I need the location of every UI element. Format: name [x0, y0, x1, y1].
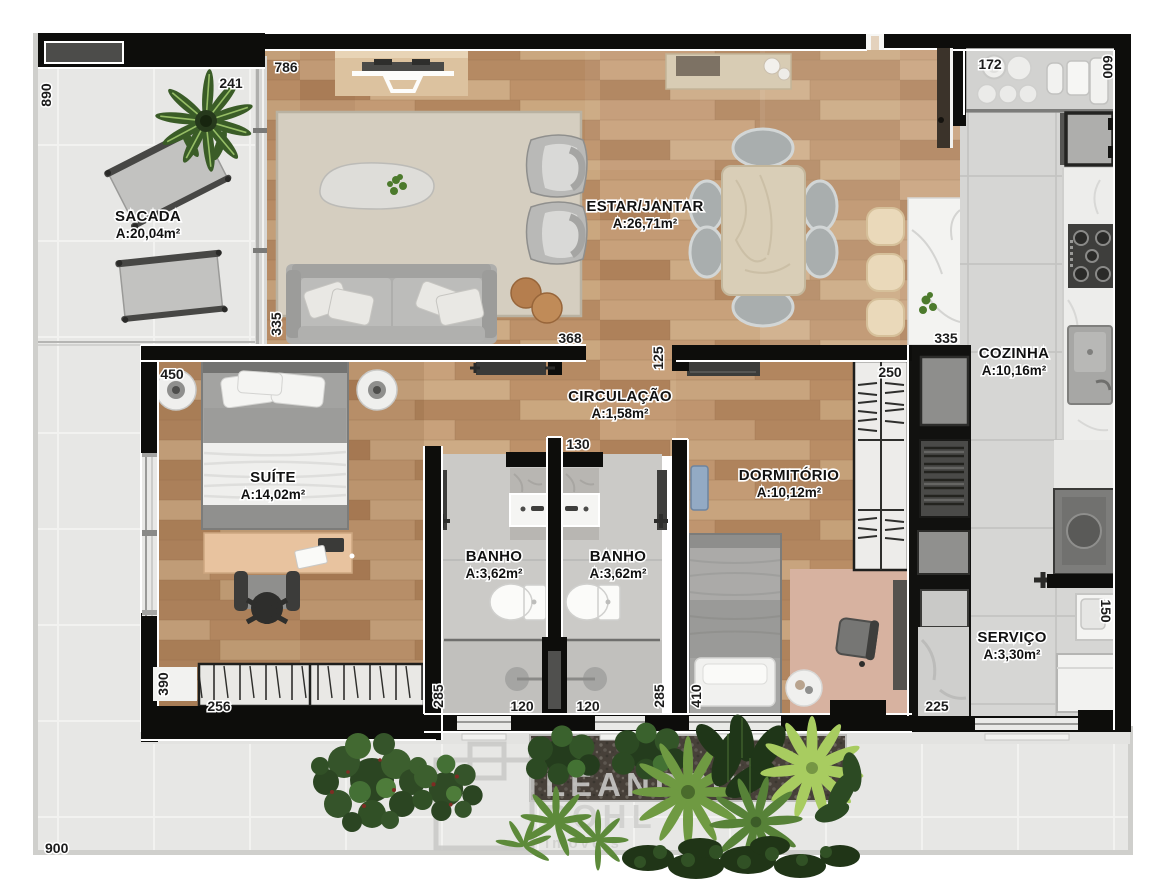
svg-text:ESTAR/JANTAR: ESTAR/JANTAR [586, 198, 703, 215]
svg-text:390: 390 [155, 672, 171, 696]
svg-text:285: 285 [651, 684, 667, 708]
svg-text:BANHO: BANHO [590, 548, 647, 565]
svg-text:A:1,58m²: A:1,58m² [591, 406, 649, 421]
svg-text:A:20,04m²: A:20,04m² [116, 226, 181, 241]
svg-text:A:3,62m²: A:3,62m² [589, 566, 647, 581]
svg-text:A:10,12m²: A:10,12m² [757, 485, 822, 500]
svg-text:172: 172 [978, 56, 1002, 72]
svg-text:A:3,62m²: A:3,62m² [465, 566, 523, 581]
svg-text:368: 368 [558, 330, 582, 346]
svg-text:DORMITÓRIO: DORMITÓRIO [739, 466, 840, 484]
svg-text:250: 250 [878, 364, 902, 380]
svg-text:SUÍTE: SUÍTE [250, 469, 296, 486]
svg-text:SACADA: SACADA [115, 208, 181, 225]
svg-text:335: 335 [934, 330, 958, 346]
svg-text:130: 130 [566, 436, 590, 452]
svg-text:125: 125 [650, 346, 666, 370]
svg-text:A:26,71m²: A:26,71m² [613, 216, 678, 231]
svg-text:786: 786 [274, 59, 298, 75]
svg-text:COZINHA: COZINHA [979, 345, 1049, 362]
svg-text:450: 450 [160, 366, 184, 382]
svg-text:A:3,30m²: A:3,30m² [983, 647, 1041, 662]
svg-text:150: 150 [1098, 599, 1114, 623]
svg-text:120: 120 [510, 698, 534, 714]
svg-text:BANHO: BANHO [466, 548, 523, 565]
svg-text:A:10,16m²: A:10,16m² [982, 363, 1047, 378]
svg-text:890: 890 [38, 83, 54, 107]
svg-text:SERVIÇO: SERVIÇO [977, 629, 1046, 646]
svg-text:241: 241 [219, 75, 243, 91]
svg-text:225: 225 [925, 698, 949, 714]
svg-text:120: 120 [576, 698, 600, 714]
svg-text:256: 256 [207, 698, 231, 714]
svg-text:600: 600 [1100, 55, 1116, 79]
svg-text:CIRCULAÇÃO: CIRCULAÇÃO [568, 387, 672, 405]
svg-text:285: 285 [430, 684, 446, 708]
svg-text:335: 335 [268, 312, 284, 336]
svg-text:900: 900 [45, 840, 69, 856]
svg-text:410: 410 [688, 684, 704, 708]
svg-text:A:14,02m²: A:14,02m² [241, 487, 306, 502]
